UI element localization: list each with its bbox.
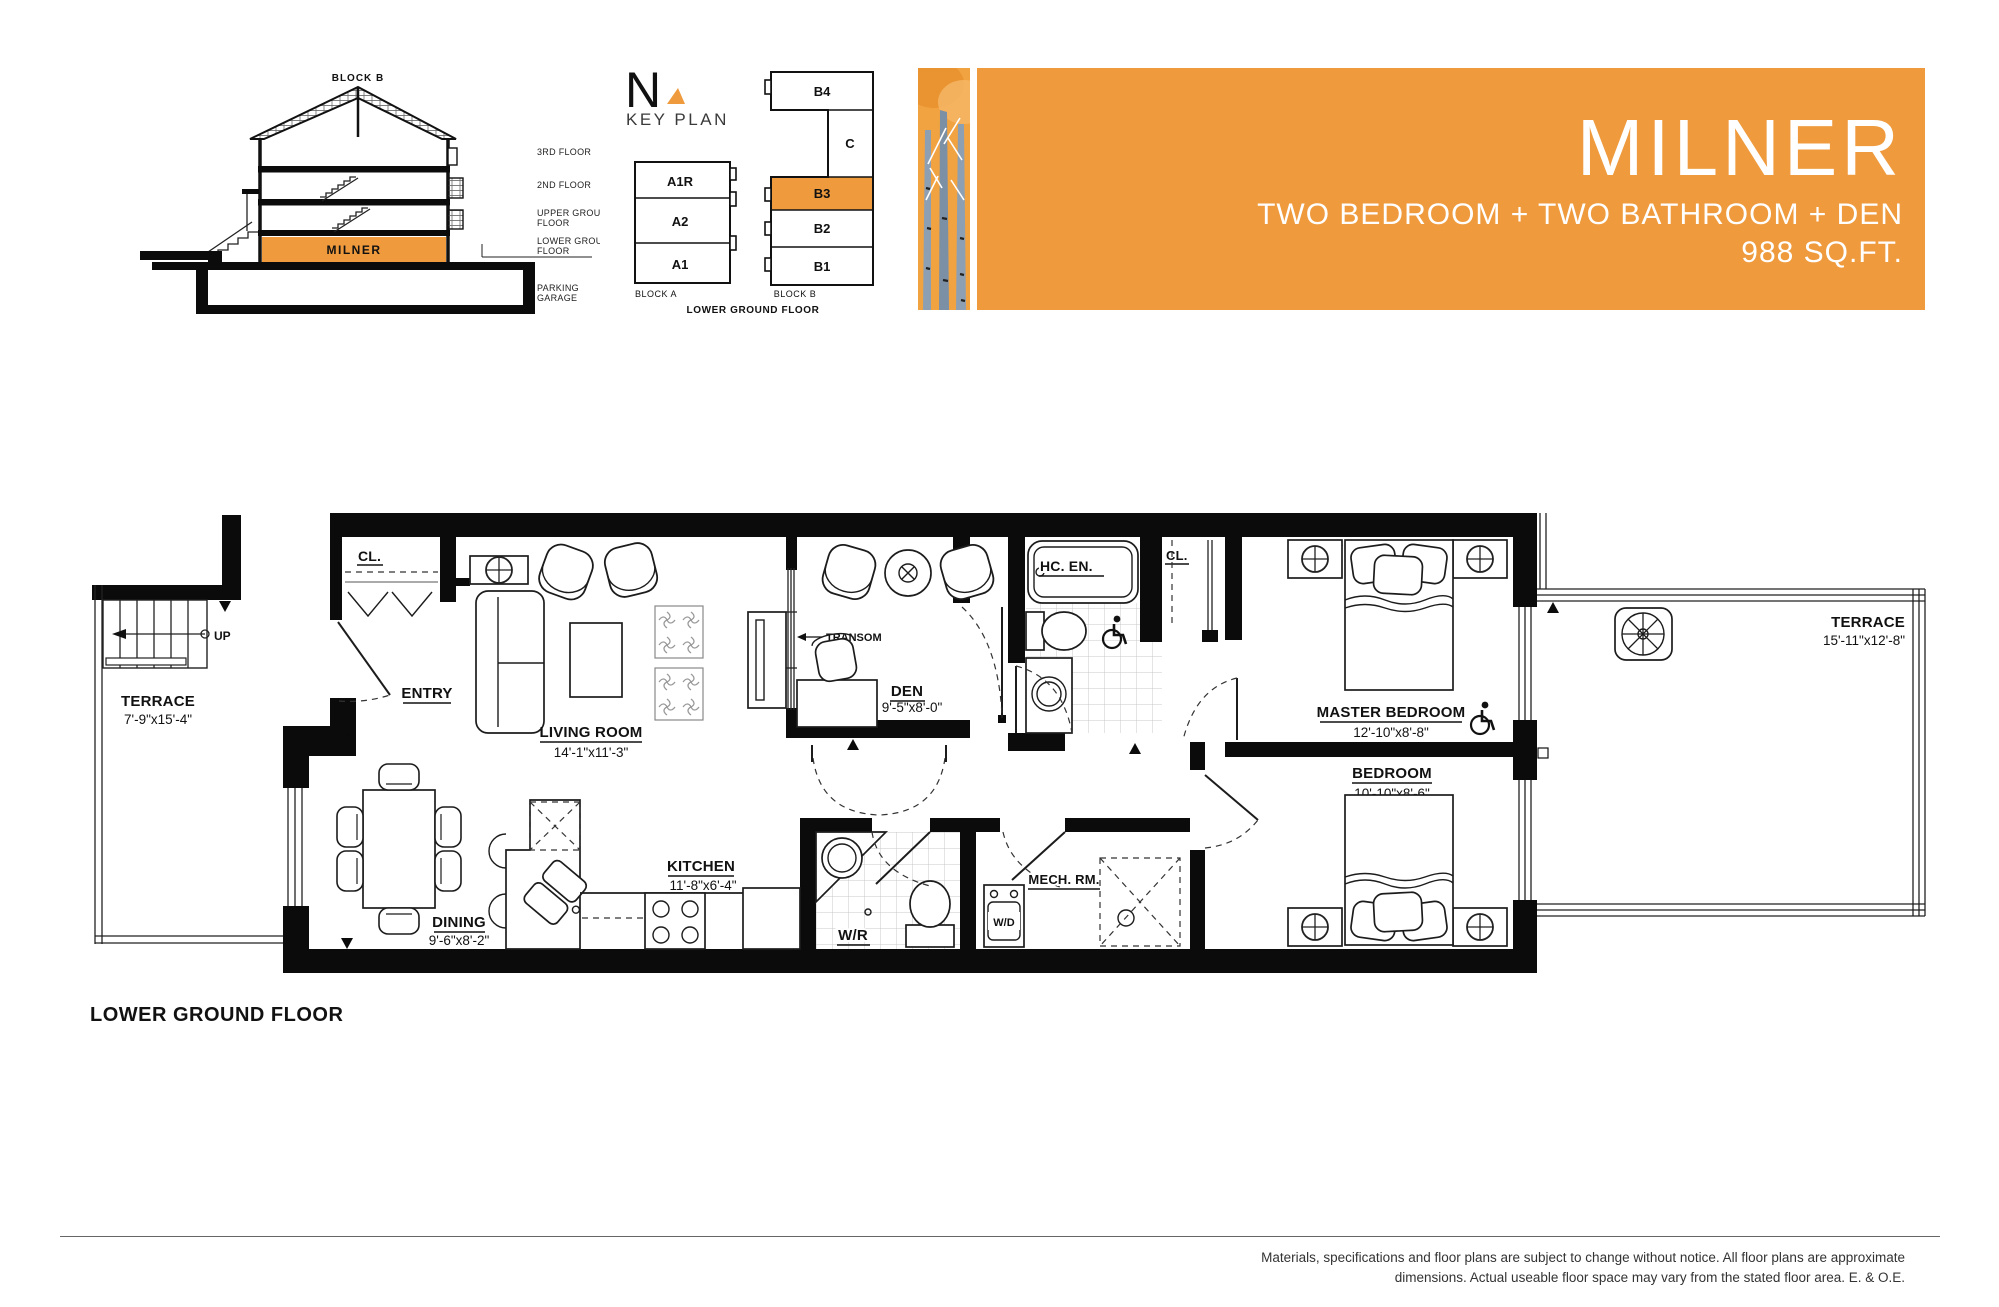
vanity-sink [1026,658,1072,733]
north-arrow-icon [667,88,685,104]
coffee-table [570,623,622,697]
stairs: UP [103,600,231,668]
floor-plan-title: LOWER GROUND FLOOR [90,1004,343,1026]
wd-label: W/D [993,917,1014,929]
section-unit-label: MILNER [327,243,382,257]
unit-b4: B4 [814,84,831,99]
master-closet-label: CL. [1166,548,1188,563]
label-parking-1: PARKING [537,283,579,293]
label-2nd-floor: 2ND FLOOR [537,180,591,190]
patio-table [1615,608,1672,660]
terrace-right: TERRACE 15'-11"x12'-8" [1537,513,1925,916]
master-bedroom: MASTER BEDROOM 12'-10"x8'-8" [1288,540,1531,740]
unit-b2: B2 [814,221,831,236]
mech-equipment [1100,858,1180,946]
label-lower-ground-1: LOWER GROUND [537,236,600,246]
stool [489,894,506,928]
terrace-right-label: TERRACE [1831,614,1905,631]
toilet [1026,612,1086,650]
birch-trees-illustration [918,68,970,310]
wr-label: W/R [838,927,868,944]
kitchen: KITCHEN 11'-8"x6'-4" [489,800,800,949]
unit-a1r: A1R [667,174,694,189]
hvac-panels [655,606,703,720]
den-chair [819,541,879,602]
disclaimer-line-2: dimensions. Actual useable floor space m… [955,1268,1905,1288]
den-dims: 9'-5"x8'-0" [882,700,943,715]
unit-b3: B3 [814,186,831,201]
mech-room: W/D MECH. RM. [984,832,1180,947]
terrace-left-dims: 7'-9"x15'-4" [124,712,192,727]
ensuite-label: HC. EN. [1040,558,1093,574]
desk [797,680,877,727]
bedroom-window [1519,780,1531,900]
unit-subtitle: TWO BEDROOM + TWO BATHROOM + DEN [1257,198,1903,232]
kitchen-label: KITCHEN [667,858,735,875]
unit-c: C [845,136,855,151]
wr-toilet [906,881,954,947]
key-plan-title: KEY PLAN [626,110,729,129]
block-a-label: BLOCK A [635,289,677,299]
unit-b1: B1 [814,259,831,274]
wall-notch [1538,748,1548,758]
unit-area: 988 SQ.FT. [1741,236,1903,270]
mech-label: MECH. RM. [1028,872,1099,887]
dining-label: DINING [432,914,486,931]
section-floor-labels: 3RD FLOOR 2ND FLOOR UPPER GROUND FLOOR L… [482,147,600,303]
label-upper-ground-2: FLOOR [537,218,570,228]
label-upper-ground-1: UPPER GROUND [537,208,600,218]
master-closet: CL. [1165,540,1212,630]
table-lamp-icon [486,557,512,583]
key-plan-floor-label: LOWER GROUND FLOOR [686,305,819,316]
roof [250,87,456,139]
den-chair [937,541,997,602]
entry-closet-label: CL. [358,548,381,564]
bedroom: BEDROOM 10'-10"x8'-6" [1205,765,1531,946]
unit-banner: MILNER TWO BEDROOM + TWO BATHROOM + DEN … [977,68,1925,310]
kitchen-dims: 11'-8"x6'-4" [669,878,736,893]
key-plan: N KEY PLAN A1R A2 A1 B4 C B3 B2 B1 BLOCK… [615,60,890,318]
terrace-right-dims: 15'-11"x12'-8" [1823,633,1905,648]
unit-a1: A1 [672,257,689,272]
unit-name: MILNER [1577,108,1903,188]
key-plan-block-b: B4 C B3 B2 B1 [765,72,873,285]
stool [489,834,506,868]
entry-label: ENTRY [401,685,452,702]
up-label: UP [214,629,231,643]
counter [743,888,800,949]
bedroom-label: BEDROOM [1352,765,1432,782]
dining-window [288,788,302,906]
wheelchair-icon [1471,702,1494,734]
label-lower-ground-2: FLOOR [537,246,570,256]
dining-dims: 9'-6"x8'-2" [429,933,490,948]
entry-area: CL. ENTRY [338,548,453,703]
living-room: LIVING ROOM 14'-1"x11'-3" [470,540,786,760]
terrace-left: UP TERRACE 7'-9"x15'-4" [95,585,283,944]
label-3rd-floor: 3RD FLOOR [537,147,591,157]
hall-double-doors [812,745,946,815]
floor-plan: UP TERRACE 7'-9"x15'-4" CL. ENTRY [60,390,1940,1040]
unit-a2: A2 [672,214,689,229]
label-parking-2: GARAGE [537,293,577,303]
section-block-label: BLOCK B [332,73,385,84]
block-b-label: BLOCK B [774,289,817,299]
tv-console [748,612,786,708]
dining-table [363,790,435,908]
master-window [1519,607,1531,720]
master-bedroom-dims: 12'-10"x8'-8" [1353,725,1429,740]
sofa [476,591,544,733]
living-room-dims: 14'-1"x11'-3" [554,745,629,760]
armchair [535,540,597,603]
armchair [602,540,661,600]
building-section-diagram: BLOCK B MILNER 3RD FLOOR 2 [140,45,600,320]
dining: DINING 9'-6"x8'-2" [288,764,489,948]
living-room-label: LIVING ROOM [539,724,642,741]
washer-dryer: W/D [984,885,1024,947]
master-bedroom-label: MASTER BEDROOM [1317,704,1466,721]
footer-divider [60,1236,1940,1237]
den-label: DEN [891,683,923,700]
disclaimer: Materials, specifications and floor plan… [955,1248,1905,1287]
key-plan-block-a: A1R A2 A1 [635,162,736,283]
walls [92,513,1537,973]
disclaimer-line-1: Materials, specifications and floor plan… [955,1248,1905,1268]
terrace-left-label: TERRACE [121,693,195,710]
